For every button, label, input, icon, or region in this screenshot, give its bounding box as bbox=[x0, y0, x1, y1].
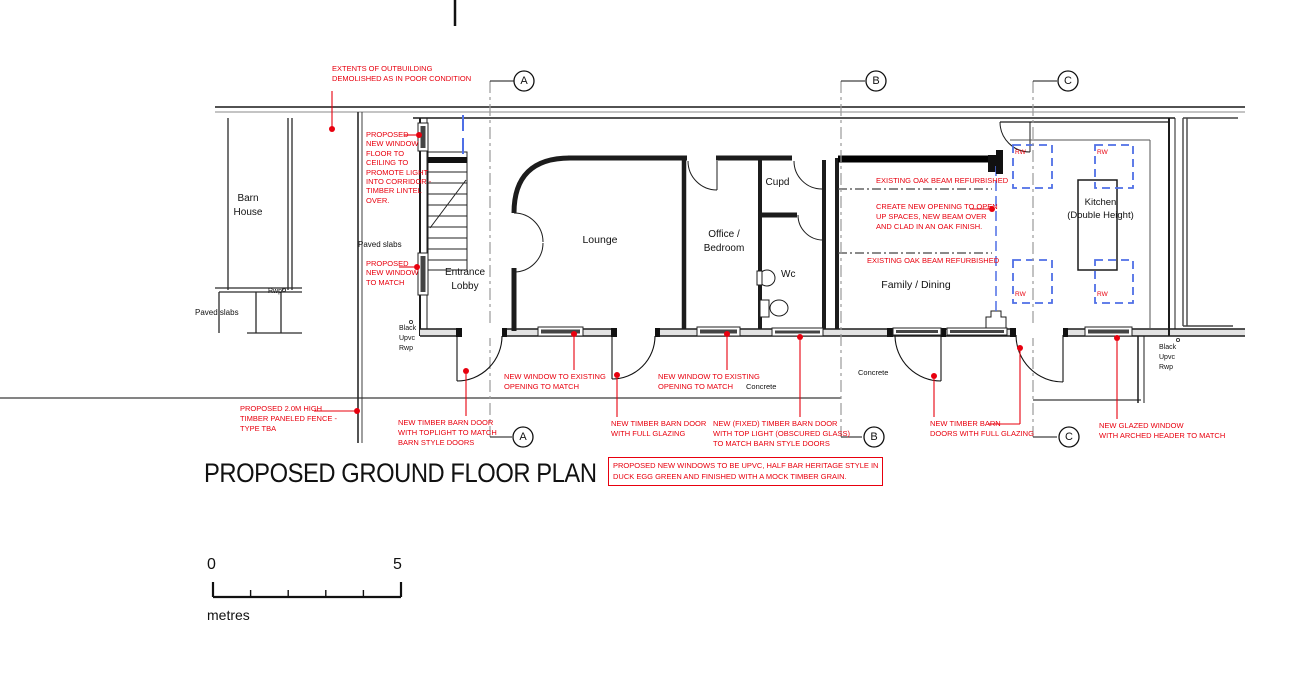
building-outline bbox=[413, 118, 1245, 403]
room-label-office-bedroom: Office / Bedroom bbox=[688, 228, 760, 255]
label-rw-1: RW bbox=[1015, 149, 1026, 158]
scale-five-label: 5 bbox=[393, 556, 402, 574]
label-rw-4: RW bbox=[1097, 291, 1108, 300]
room-label-wc: Wc bbox=[781, 268, 795, 282]
room-label-family-dining: Family / Dining bbox=[866, 278, 966, 292]
label-paved-slabs-left: Paved slabs bbox=[195, 308, 239, 319]
label-rw-3: RW bbox=[1015, 291, 1026, 300]
annotation-window-existing-1: NEW WINDOW TO EXISTING OPENING TO MATCH bbox=[504, 372, 606, 392]
label-concrete-right: Concrete bbox=[858, 368, 888, 378]
floor-plan-linework bbox=[0, 0, 1305, 684]
fence-line bbox=[358, 112, 362, 443]
floor-plan-canvas: Barn House Paved slabs Rwp° Paved slabs … bbox=[0, 0, 1305, 684]
drawing-title: PROPOSED GROUND FLOOR PLAN bbox=[204, 458, 597, 489]
annotation-window-existing-2: NEW WINDOW TO EXISTING OPENING TO MATCH bbox=[658, 372, 760, 392]
room-label-cupd: Cupd bbox=[755, 176, 800, 190]
grid-marker-c-bottom: C bbox=[1061, 429, 1077, 445]
room-label-barn-house: Barn House bbox=[223, 192, 273, 219]
annotation-barn-door-toplight: NEW TIMBER BARN DOOR WITH TOPLIGHT TO MA… bbox=[398, 418, 497, 448]
annotation-glazed-arched-window: NEW GLAZED WINDOW WITH ARCHED HEADER TO … bbox=[1099, 421, 1225, 441]
label-rw-2: RW bbox=[1097, 149, 1108, 158]
scale-zero-label: 0 bbox=[207, 556, 216, 574]
annotation-upvc-note-box: PROPOSED NEW WINDOWS TO BE UPVC, HALF BA… bbox=[608, 457, 883, 486]
label-paved-slabs-yard: Paved slabs bbox=[358, 240, 402, 251]
scale-unit-label: metres bbox=[207, 607, 250, 623]
staircase bbox=[428, 152, 467, 270]
grid-marker-b-bottom: B bbox=[866, 429, 882, 445]
room-label-entrance-lobby: Entrance Lobby bbox=[435, 266, 495, 293]
annotation-fixed-barn-door: NEW (FIXED) TIMBER BARN DOOR WITH TOP LI… bbox=[713, 419, 850, 449]
annotation-extents-outbuilding: EXTENTS OF OUTBUILDING DEMOLISHED AS IN … bbox=[332, 64, 471, 84]
label-black-upvc-rwp-right: Black Upvc Rwp bbox=[1159, 343, 1176, 373]
annotation-create-opening: CREATE NEW OPENING TO OPEN UP SPACES, NE… bbox=[876, 202, 998, 232]
room-label-kitchen: Kitchen (Double Height) bbox=[1058, 197, 1143, 223]
grid-marker-a-top: A bbox=[516, 73, 532, 89]
annotation-oak-beam-2: EXISTING OAK BEAM REFURBISHED bbox=[867, 256, 999, 266]
grid-marker-a-bottom: A bbox=[515, 429, 531, 445]
annotation-window-floor-to-ceiling: PROPOSED NEW WINDOW FLOOR TO CEILING TO … bbox=[366, 130, 431, 205]
grid-marker-c-top: C bbox=[1060, 73, 1076, 89]
annotation-oak-beam-1: EXISTING OAK BEAM REFURBISHED bbox=[876, 176, 1008, 186]
annotation-barn-door-glazing: NEW TIMBER BARN DOOR WITH FULL GLAZING bbox=[611, 419, 706, 439]
label-black-upvc-rwp-left: Black Upvc Rwp bbox=[399, 324, 416, 354]
annotation-barn-doors-glazing: NEW TIMBER BARN DOORS WITH FULL GLAZING bbox=[930, 419, 1034, 439]
scale-bar bbox=[213, 582, 401, 597]
grid-marker-b-top: B bbox=[868, 73, 884, 89]
neighbor-structure bbox=[1183, 118, 1238, 326]
annotation-fence: PROPOSED 2.0M HIGH TIMBER PANELED FENCE … bbox=[240, 404, 337, 434]
barn-house-walls bbox=[215, 118, 302, 333]
room-label-lounge: Lounge bbox=[570, 233, 630, 247]
annotation-window-to-match: PROPOSED NEW WINDOW TO MATCH bbox=[366, 259, 419, 287]
label-rwp: Rwp° bbox=[268, 287, 285, 296]
